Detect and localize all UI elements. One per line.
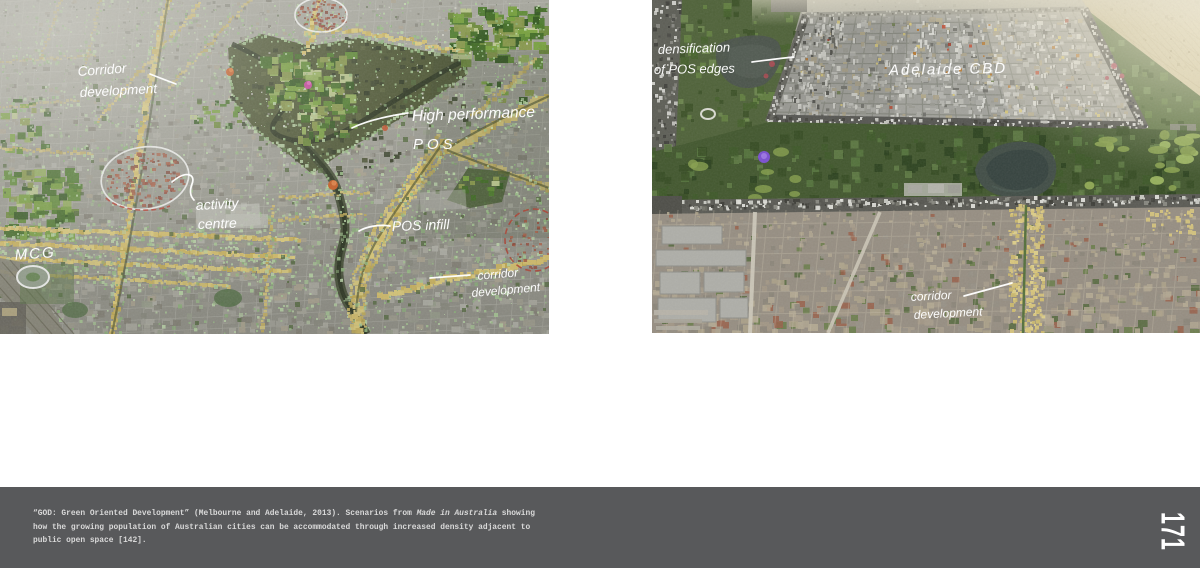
- svg-text:corridor: corridor: [910, 288, 952, 304]
- svg-text:POS: POS: [413, 136, 457, 153]
- svg-text:activity: activity: [195, 195, 240, 213]
- svg-text:Adelaide CBD: Adelaide CBD: [888, 60, 1007, 79]
- svg-text:centre: centre: [198, 215, 238, 232]
- svg-text:densification: densification: [658, 39, 731, 57]
- svg-text:POS infill: POS infill: [392, 216, 451, 234]
- svg-text:of POS edges: of POS edges: [654, 61, 736, 77]
- svg-text:MCG: MCG: [14, 244, 56, 264]
